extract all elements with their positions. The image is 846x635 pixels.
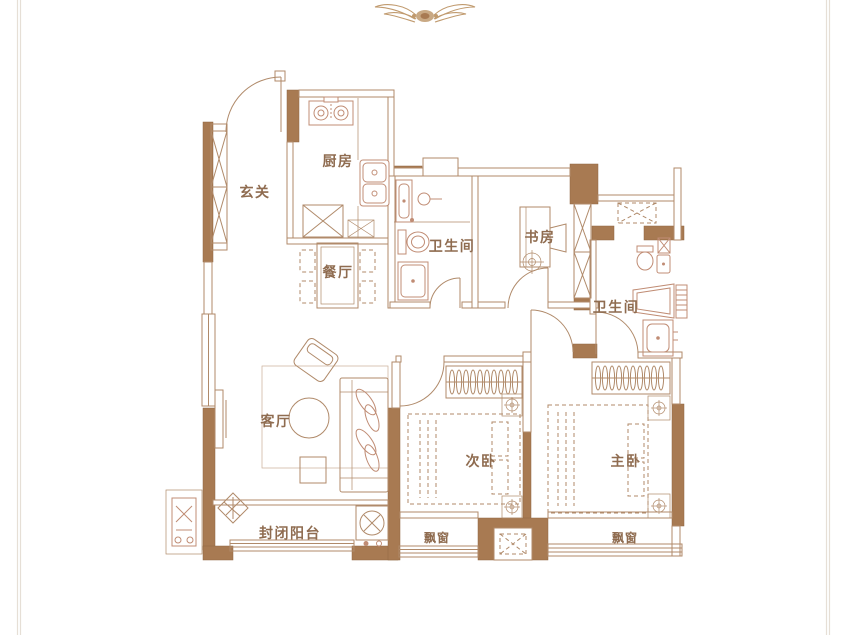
floor-plan-canvas: 玄关 厨房 卫生间 书房 餐厅 客厅 次卧 主卧 卫生间 封闭阳台 飘窗 飘窗 (0, 0, 846, 635)
coffee-table (289, 398, 329, 438)
living-furniture (215, 337, 388, 492)
wall-master-right-upper (672, 358, 680, 404)
winged-ornament-icon (375, 5, 475, 22)
washing-machine (356, 506, 388, 546)
label-bay-right: 飘窗 (612, 530, 638, 545)
study-window (574, 204, 591, 298)
sofa (340, 378, 388, 492)
bath1-basin (418, 193, 442, 205)
bath1-vanity (396, 180, 412, 222)
wall-study-top-right (570, 164, 598, 204)
duct-box-top (423, 158, 458, 176)
bay-window-left (399, 546, 478, 557)
wall-bedroom-divider-upper (523, 362, 531, 432)
entry-window (211, 124, 227, 250)
label-kitchen: 厨房 (323, 153, 354, 169)
label-bath2: 卫生间 (593, 299, 640, 315)
wall-balcony-corner-left (203, 546, 233, 560)
bedroom2-door (392, 362, 444, 408)
wall-balcony-divider (213, 500, 388, 505)
label-living: 客厅 (260, 413, 292, 429)
kitchen-appliance (348, 220, 374, 237)
wall-master-right (672, 404, 684, 526)
bath1-door (430, 278, 460, 308)
wall-kitchen-top-left (287, 90, 299, 142)
bath1-toilet (398, 230, 429, 254)
label-entry: 玄关 (240, 184, 271, 200)
wall-left-mid (204, 262, 212, 314)
wall-bedroom2-bottom (400, 512, 478, 518)
wall-living-left (203, 408, 215, 550)
label-dining: 餐厅 (322, 264, 354, 280)
label-bedroom2: 次卧 (466, 453, 497, 469)
wall-bedroom-divider-lower (523, 430, 531, 520)
wall-recess-top (598, 195, 676, 201)
tv-cabinet (215, 390, 226, 448)
master-furniture (548, 362, 670, 518)
wall-bath1-study-top (394, 168, 570, 176)
stove (309, 97, 353, 125)
dining-chair (360, 281, 375, 303)
wall-bath2-top-left (592, 226, 614, 240)
wall-kitchen-top (299, 90, 394, 97)
duct-shaft (618, 203, 656, 223)
wall-living-east (388, 408, 400, 560)
bath2-shower (633, 284, 687, 318)
ac-unit-platform (166, 490, 202, 554)
floor-drain (410, 218, 414, 222)
sofa-pillow-leaf (352, 426, 381, 473)
bath2-fixtures (633, 238, 687, 356)
label-bath1: 卫生间 (429, 238, 476, 254)
wall-kitchen-entry (287, 142, 293, 240)
dining-chair (300, 281, 315, 303)
balcony-window (230, 540, 354, 551)
bath2-door (596, 312, 638, 354)
bath2-cabinet (657, 238, 670, 273)
kitchen-sink (360, 160, 389, 206)
wall-bath1-bottom-b (462, 302, 472, 308)
armchair (292, 337, 340, 384)
bath1-shower (398, 262, 428, 300)
bay-window-right (548, 544, 682, 556)
refrigerator (303, 205, 343, 237)
plant (218, 493, 248, 523)
bedroom2-wardrobe (446, 366, 522, 398)
wall-bedroom2-top-jamb (396, 356, 401, 362)
master-door (531, 310, 573, 352)
label-bay-left: 飘窗 (424, 530, 450, 545)
nightstand (502, 394, 522, 416)
side-table (300, 457, 326, 483)
living-window (202, 314, 215, 406)
entry-door-jamb (275, 71, 285, 81)
dining-chair (360, 250, 375, 272)
nightstand (502, 496, 522, 518)
wall-recess-right (674, 168, 681, 240)
wall-study-bottom-a (478, 302, 505, 308)
nightstand (648, 396, 670, 420)
bath2-toilet (637, 246, 653, 270)
label-master: 主卧 (611, 453, 642, 469)
wall-bedroom2-top (444, 356, 523, 362)
shaft-bottom (478, 518, 548, 560)
wall-master-top (573, 344, 597, 358)
wall-bath1-bottom-a (390, 302, 430, 308)
label-study: 书房 (525, 229, 556, 245)
wall-bath2-bottom (638, 352, 682, 358)
label-balcony: 封闭阳台 (259, 525, 321, 541)
bedroom2-furniture (408, 366, 522, 518)
bedroom2-bed (408, 414, 520, 504)
master-wardrobe (592, 362, 670, 394)
study-door (508, 268, 548, 308)
windows (202, 124, 682, 557)
entry-door (226, 77, 281, 132)
bath2-vanity (643, 320, 678, 356)
ceiling-symbol (520, 250, 544, 274)
sofa-pillow-leaf (352, 386, 381, 433)
dining-chair (300, 250, 315, 272)
